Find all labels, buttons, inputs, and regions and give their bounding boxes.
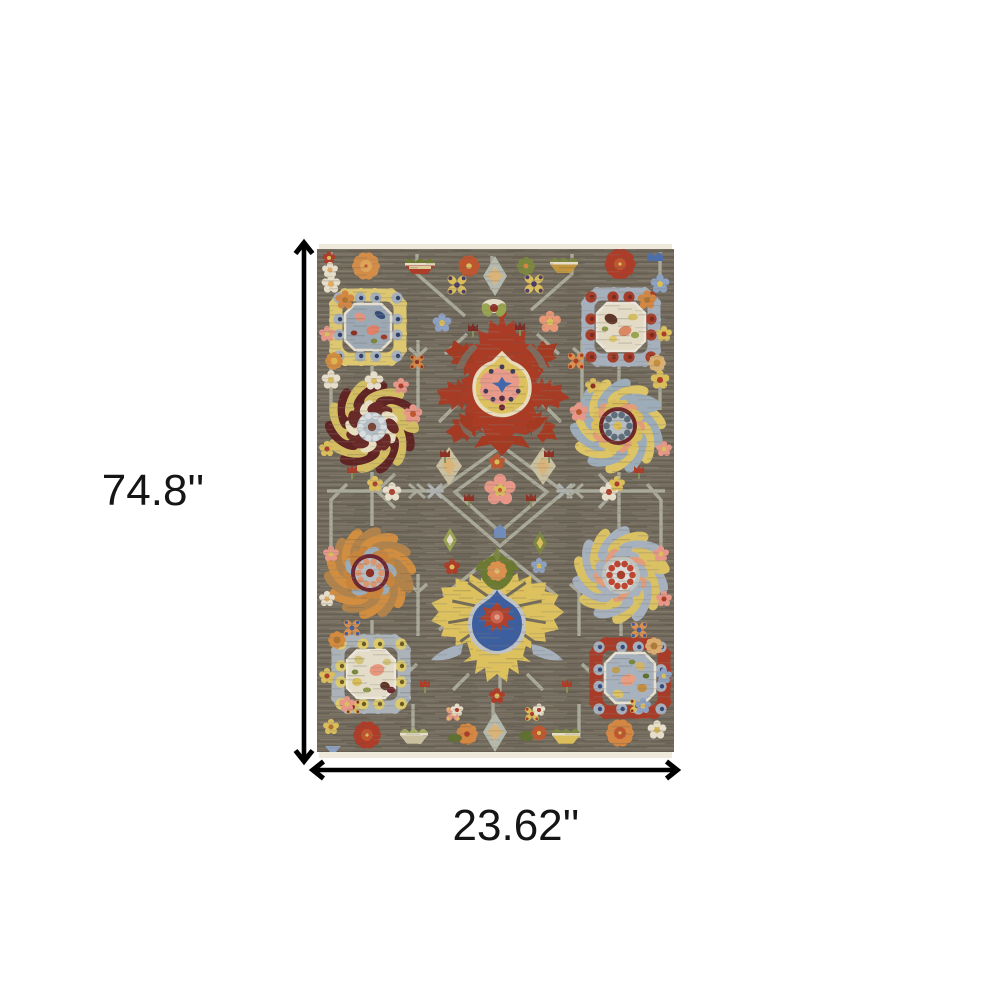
svg-text:74.8'': 74.8'' (102, 466, 204, 515)
svg-text:23.62'': 23.62'' (453, 801, 580, 850)
